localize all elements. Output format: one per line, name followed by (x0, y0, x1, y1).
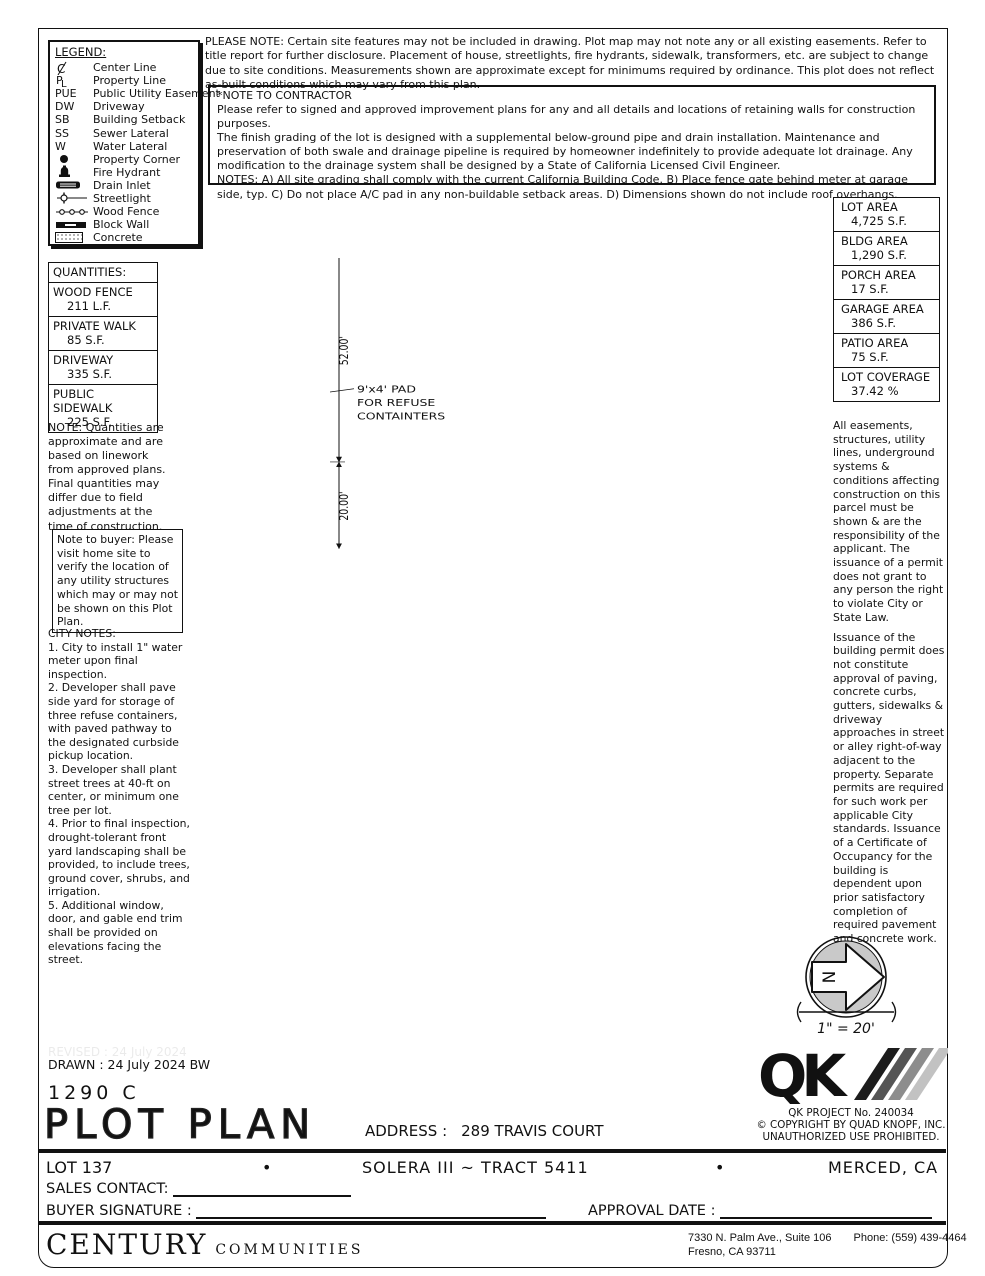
city-notes-title: CITY NOTES: (48, 627, 191, 641)
builder-logo: CENTURYCOMMUNITIES (46, 1228, 363, 1261)
svg-text:CONTAINTERS: CONTAINTERS (357, 411, 445, 422)
buyer-signature-label: BUYER SIGNATURE : (46, 1203, 192, 1219)
legend-item: Fire Hydrant (55, 166, 193, 179)
svg-text:PLOT PLAN: PLOT PLAN (44, 1102, 316, 1148)
pad-leader-line (330, 389, 354, 399)
legend-item: W Water Lateral (55, 140, 193, 153)
legend-item: DW Driveway (55, 100, 193, 113)
city-note-item: 3. Developer shall plant street trees at… (48, 763, 191, 817)
legend-item: Concrete (55, 231, 193, 244)
sales-contact-label: SALES CONTACT: (46, 1181, 169, 1197)
approval-date-row: APPROVAL DATE : (588, 1203, 932, 1219)
svg-text:FOR REFUSE: FOR REFUSE (357, 397, 435, 408)
legend-box: LEGEND: C Center Line PL Property Line P… (48, 40, 200, 246)
address-label: ADDRESS : (365, 1122, 447, 1140)
legend-title: LEGEND: (55, 45, 193, 59)
area-row: PATIO AREA 75 S.F. (833, 334, 940, 368)
streetlight-icon (55, 191, 89, 205)
concrete-icon (55, 232, 83, 243)
areas-table: LOT AREA 4,725 S.F. BLDG AREA 1,290 S.F.… (833, 197, 940, 402)
approval-date-label: APPROVAL DATE : (588, 1203, 715, 1219)
property-line-icon: PL (55, 74, 85, 88)
area-row: BLDG AREA 1,290 S.F. (833, 232, 940, 266)
quantity-row: DRIVEWAY 335 S.F. (48, 351, 158, 385)
north-arrow: N 1" = 20' (770, 925, 960, 1037)
quantities-table: QUANTITIES: WOOD FENCE 211 L.F. PRIVATE … (48, 262, 158, 433)
block-wall-icon (55, 218, 89, 232)
builder-name: CENTURY (46, 1228, 207, 1261)
svg-text:52.00': 52.00' (337, 336, 352, 365)
property-corner-icon (55, 152, 85, 166)
scale-label: 1" = 20' (817, 1021, 875, 1037)
city-note-item: 2. Developer shall pave side yard for st… (48, 681, 191, 763)
area-row: LOT COVERAGE 37.42 % (833, 368, 940, 402)
address-line: ADDRESS :289 TRAVIS COURT (365, 1122, 604, 1140)
contractor-paragraph: Please refer to signed and approved impr… (217, 103, 927, 131)
plot-plan-sheet: LEGEND: C Center Line PL Property Line P… (0, 0, 985, 1276)
svg-text:N: N (820, 971, 840, 984)
drain-inlet-icon (55, 178, 85, 192)
tract-label: SOLERA III ~ TRACT 5411 (362, 1158, 589, 1177)
note-to-contractor-box: *NOTE TO CONTRACTOR Please refer to sign… (208, 85, 936, 185)
center-line-icon: C (55, 61, 85, 75)
city-notes: CITY NOTES: 1. City to install 1" water … (48, 627, 191, 967)
svg-text:C: C (57, 62, 65, 75)
legend-item: PL Property Line (55, 74, 193, 87)
city-note-item: 4. Prior to final inspection, drought-to… (48, 817, 191, 899)
contractor-title: *NOTE TO CONTRACTOR (217, 89, 927, 103)
legend-item: PUE Public Utility Easement (55, 87, 193, 100)
refuse-pad-callout: 9'x4' PAD (357, 384, 416, 395)
bullet: • (262, 1158, 271, 1177)
buyer-signature-field[interactable] (196, 1205, 546, 1219)
legend-item: SS Sewer Lateral (55, 126, 193, 139)
builder-address: 7330 N. Palm Ave., Suite 106Phone: (559)… (688, 1231, 967, 1260)
divider (38, 1149, 946, 1153)
quantities-note: NOTE: Quantities are approximate and are… (48, 421, 168, 534)
area-row: PORCH AREA 17 S.F. (833, 266, 940, 300)
quantities-title: QUANTITIES: (48, 262, 158, 283)
quantity-row: WOOD FENCE 211 L.F. (48, 283, 158, 317)
sales-contact-row: SALES CONTACT: (46, 1181, 351, 1197)
city-note-item: 5. Additional window, door, and gable en… (48, 899, 191, 967)
legend-item: Drain Inlet (55, 179, 193, 192)
legend-item: C Center Line (55, 61, 193, 74)
area-row: GARAGE AREA 386 S.F. (833, 300, 940, 334)
builder-phone: Phone: (559) 439-4464 (854, 1232, 967, 1244)
qk-logo-block: QK QK PROJECT No. 240034 © COPYRIGHT BY … (754, 1044, 948, 1144)
buyer-note-box: Note to buyer: Please visit home site to… (52, 529, 183, 633)
permit-note: Issuance of the building permit does not… (833, 631, 946, 946)
city-note-item: 1. City to install 1" water meter upon f… (48, 641, 191, 682)
sheet-title: PLOT PLAN (42, 1100, 322, 1148)
legend-item: SB Building Setback (55, 113, 193, 126)
svg-text:20.00': 20.00' (337, 491, 352, 520)
easements-note: All easements, structures, utility lines… (833, 419, 946, 625)
legend-item: Wood Fence (55, 205, 193, 218)
fire-hydrant-icon (55, 165, 85, 179)
city-label: MERCED, CA (828, 1158, 938, 1177)
qk-unauthorized: UNAUTHORIZED USE PROHIBITED. (754, 1132, 948, 1144)
contractor-paragraph: The finish grading of the lot is designe… (217, 131, 927, 173)
lot-label: LOT 137 (46, 1158, 112, 1177)
address-value: 289 TRAVIS COURT (461, 1122, 603, 1140)
svg-text:QK: QK (758, 1044, 848, 1104)
builder-name-2: COMMUNITIES (215, 1242, 363, 1258)
legend-item: Property Corner (55, 153, 193, 166)
sales-contact-field[interactable] (173, 1183, 351, 1197)
quantity-row: PRIVATE WALK 85 S.F. (48, 317, 158, 351)
drawn-date: DRAWN : 24 July 2024 BW (48, 1057, 210, 1072)
please-note-text: PLEASE NOTE: Certain site features may n… (205, 35, 938, 92)
plot-drawing: 45.00' PL 33.00' 52.00' 20.00' 105.00' 3… (330, 258, 810, 1020)
contractor-paragraph: NOTES: A) All site grading shall comply … (217, 173, 927, 201)
approval-date-field[interactable] (720, 1205, 932, 1219)
buyer-signature-row: BUYER SIGNATURE : (46, 1203, 546, 1219)
qk-logo: QK (754, 1044, 948, 1104)
plot-labels: 45.00' PL 33.00' 52.00' 20.00' 105.00' 3… (330, 258, 445, 630)
bullet: • (715, 1158, 724, 1177)
legend-item: Streetlight (55, 192, 193, 205)
right-margin-notes: All easements, structures, utility lines… (833, 419, 946, 946)
divider (38, 1221, 946, 1225)
legend-item: Block Wall (55, 218, 193, 231)
area-row: LOT AREA 4,725 S.F. (833, 197, 940, 232)
wood-fence-icon (55, 205, 89, 219)
